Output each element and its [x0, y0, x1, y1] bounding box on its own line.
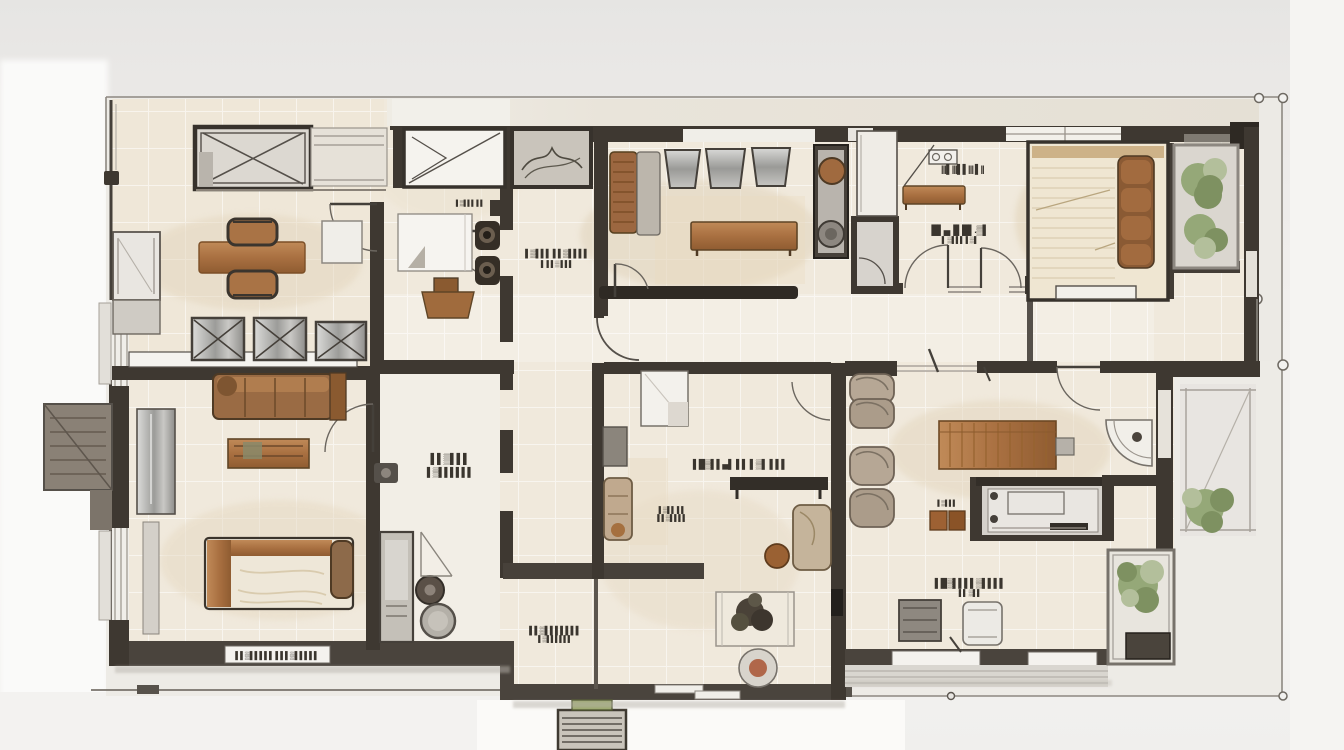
svg-text:▌▒▌▌▌ ▌▌: ▌▒▌▌▌ ▌▌	[456, 199, 484, 207]
svg-text:▌▌ ▒▌▌: ▌▌ ▒▌▌	[959, 589, 981, 597]
svg-text:▌█▒▌▌▌▌▒▌▌▌▌: ▌█▒▌▌▌▌▒▌▌▌▌	[935, 577, 1006, 589]
svg-text:▌▒▌▌▌▌▌▌: ▌▒▌▌▌▌▌▌	[427, 466, 473, 478]
svg-text:|||▌|||▌▌||| ▌||: |||▌|||▌▌||| ▌||	[941, 163, 984, 175]
svg-text:▌█▒▌▌▄▌ ▌▌ ▌▒▌ ▌▌▌: ▌█▒▌▌▄▌ ▌▌ ▌▒▌ ▌▌▌	[693, 458, 787, 470]
svg-text:▌▌▒▌▌▌▌▌▌▌: ▌▌▒▌▌▌▌▌▌▌	[529, 625, 581, 636]
svg-text:▌▌▒▌▌▌: ▌▌▒▌▌▌	[431, 452, 470, 466]
svg-text:▌▌▒▌▌▌▌▌ ▌▌▌▒▌▌▌▌▌: ▌▌▒▌▌▌▌▌ ▌▌▌▒▌▌▌▌▌	[235, 651, 318, 661]
svg-text:▌▌▒▌▌▌▌: ▌▌▒▌▌▌▌	[657, 514, 686, 522]
svg-text:▌▒▌▌▌ ▌▌▒▌▌▌▌: ▌▒▌▌▌ ▌▌▒▌▌▌▌	[525, 248, 589, 259]
svg-text:▌▒▌▌▌▌▌▌: ▌▒▌▌▌▌▌▌	[538, 635, 572, 643]
svg-text:▌▒▌▌▌: ▌▒▌▌▌	[937, 499, 956, 507]
svg-text:▌ ▒▌▌▌ ▌▒▌: ▌ ▒▌▌▌ ▌▒▌	[942, 236, 978, 244]
svg-text:█▌▄▐▌█▌.▒▌: █▌▄▐▌█▌.▒▌	[931, 224, 988, 236]
svg-text:▌▒▌▌ ▌▌: ▌▒▌▌ ▌▌	[659, 506, 686, 514]
svg-text:▌ ▌▌▒ ▌▌▌: ▌ ▌▌▒ ▌▌▌	[541, 260, 573, 268]
